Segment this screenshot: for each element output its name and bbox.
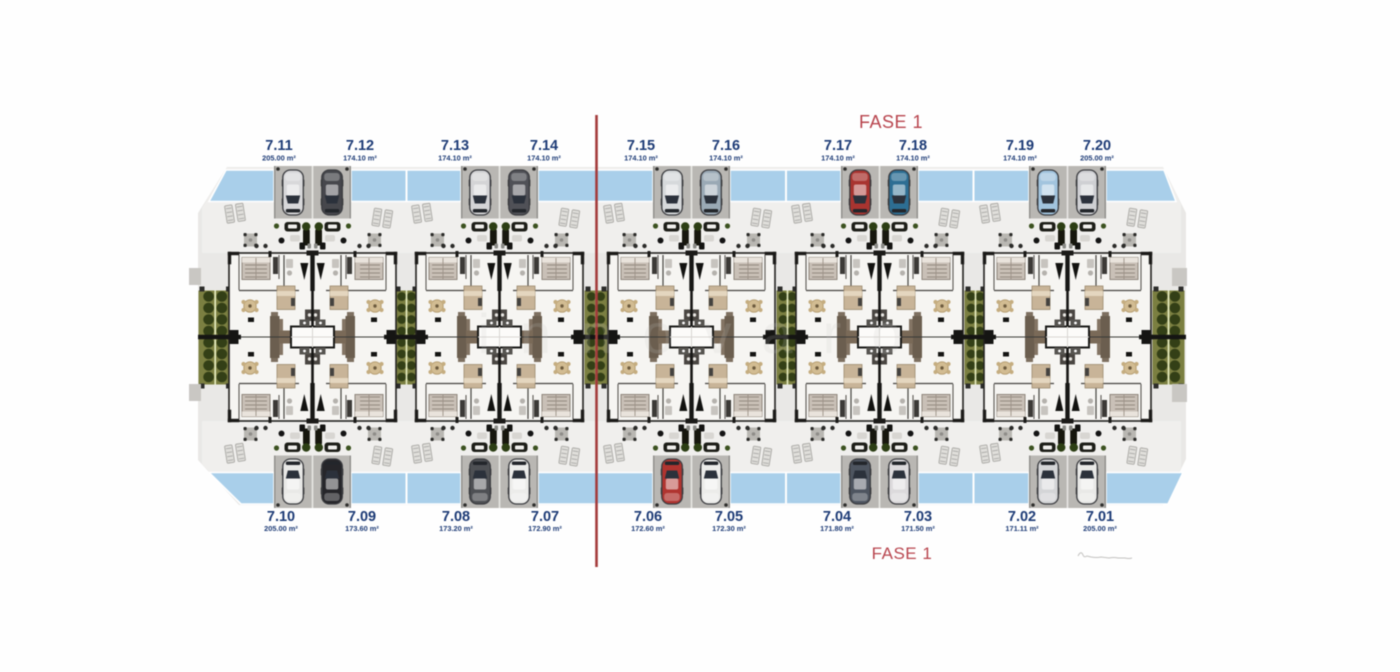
svg-text:171.50 m²: 171.50 m² <box>901 524 935 533</box>
svg-text:7.13: 7.13 <box>441 138 469 154</box>
svg-text:174.10 m²: 174.10 m² <box>821 154 855 163</box>
svg-text:174.10 m²: 174.10 m² <box>1003 154 1037 163</box>
svg-text:7.14: 7.14 <box>530 138 558 154</box>
svg-text:7.07: 7.07 <box>531 509 559 525</box>
svg-text:FASE 1: FASE 1 <box>872 544 933 563</box>
svg-text:7.01: 7.01 <box>1086 509 1114 525</box>
svg-text:7.20: 7.20 <box>1083 138 1111 154</box>
svg-text:172.30 m²: 172.30 m² <box>712 524 746 533</box>
svg-text:7.19: 7.19 <box>1006 138 1034 154</box>
svg-text:innovaro: innovaro <box>478 302 933 365</box>
svg-text:7.04: 7.04 <box>823 509 851 525</box>
svg-text:7.10: 7.10 <box>267 509 295 525</box>
svg-text:174.10 m²: 174.10 m² <box>438 154 472 163</box>
svg-text:173.20 m²: 173.20 m² <box>439 524 473 533</box>
svg-text:205.00 m²: 205.00 m² <box>1080 154 1114 163</box>
svg-text:172.60 m²: 172.60 m² <box>631 524 665 533</box>
svg-text:7.16: 7.16 <box>712 138 740 154</box>
svg-text:7.17: 7.17 <box>824 138 852 154</box>
svg-text:205.00 m²: 205.00 m² <box>1083 524 1117 533</box>
svg-text:174.10 m²: 174.10 m² <box>896 154 930 163</box>
svg-text:174.10 m²: 174.10 m² <box>709 154 743 163</box>
svg-text:205.00 m²: 205.00 m² <box>262 154 296 163</box>
svg-text:FASE 1: FASE 1 <box>859 112 923 132</box>
svg-text:7.18: 7.18 <box>899 138 927 154</box>
svg-text:174.10 m²: 174.10 m² <box>527 154 561 163</box>
svg-text:174.10 m²: 174.10 m² <box>343 154 377 163</box>
svg-text:7.11: 7.11 <box>265 138 292 154</box>
svg-text:7.15: 7.15 <box>627 138 655 154</box>
svg-text:7.05: 7.05 <box>715 509 743 525</box>
svg-text:7.09: 7.09 <box>348 509 376 525</box>
svg-text:205.00 m²: 205.00 m² <box>264 524 298 533</box>
svg-text:7.12: 7.12 <box>346 138 374 154</box>
svg-text:7.06: 7.06 <box>634 509 662 525</box>
svg-text:171.11 m²: 171.11 m² <box>1005 524 1039 533</box>
svg-text:171.80 m²: 171.80 m² <box>820 524 854 533</box>
svg-text:7.02: 7.02 <box>1008 509 1036 525</box>
svg-text:7.08: 7.08 <box>442 509 470 525</box>
svg-text:173.60 m²: 173.60 m² <box>345 524 379 533</box>
svg-text:172.90 m²: 172.90 m² <box>528 524 562 533</box>
svg-text:174.10 m²: 174.10 m² <box>624 154 658 163</box>
svg-text:7.03: 7.03 <box>904 509 932 525</box>
